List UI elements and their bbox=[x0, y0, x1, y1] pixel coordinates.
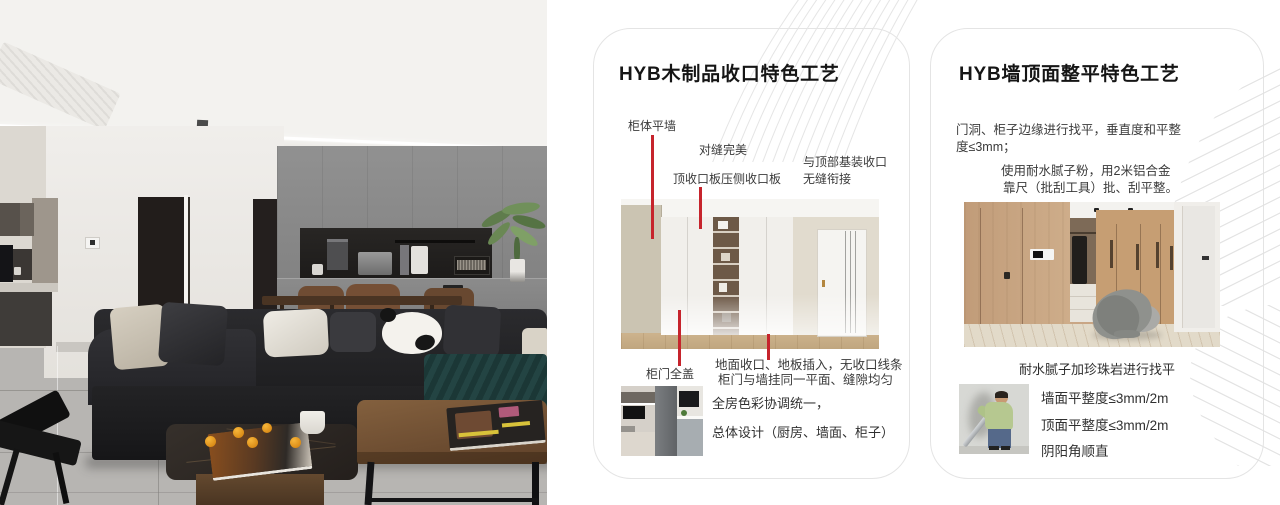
panda-ear bbox=[380, 308, 396, 322]
hanging-jacket bbox=[1072, 236, 1087, 284]
linear-air-vent bbox=[0, 42, 121, 131]
dark-doorway-1 bbox=[138, 197, 190, 315]
door-trim bbox=[184, 195, 188, 317]
orange-fruit bbox=[205, 436, 216, 447]
dining-table bbox=[262, 296, 462, 305]
black-sling-chair bbox=[0, 404, 88, 505]
leader-line bbox=[699, 187, 702, 229]
groove-handle bbox=[1170, 246, 1173, 270]
callout-top-board: 顶收口板压侧收口板 bbox=[673, 170, 781, 187]
thumb-tv bbox=[623, 406, 645, 419]
door-handle-small bbox=[1202, 256, 1209, 260]
worker-shoe bbox=[989, 446, 999, 450]
door-lock bbox=[1004, 272, 1010, 279]
hall-doorway bbox=[1174, 202, 1220, 332]
callout-perfect-seam: 对缝完美 bbox=[699, 141, 747, 158]
coffee-machine-left bbox=[0, 245, 13, 282]
card-wood-finishing: HYB木制品收口特色工艺 柜体平墙 对缝完美 顶收口板压侧收口板 与顶部基装收口… bbox=[593, 28, 910, 479]
shelf-object bbox=[721, 253, 730, 261]
summary-line-2: 总体设计（厨房、墙面、柜子） bbox=[712, 422, 894, 441]
thumb-appliance bbox=[679, 391, 699, 407]
spec-wall-flatness: 墙面平整度≤3mm/2m bbox=[1041, 387, 1168, 407]
doorway-inner-wall bbox=[1182, 206, 1215, 328]
mug bbox=[14, 267, 21, 275]
para2-line2: 靠尺（批刮工具）批、刮平整。 bbox=[1003, 177, 1178, 196]
image-caption: 耐水腻子加珍珠岩进行找平 bbox=[931, 359, 1263, 378]
coffee-bar-niche bbox=[300, 228, 492, 278]
kitchen-base-cabinet bbox=[0, 292, 52, 346]
worker-hair bbox=[995, 391, 1008, 398]
leader-line bbox=[651, 135, 654, 239]
kitchen-upper-cabinet-door bbox=[20, 203, 34, 236]
card2-title: HYB墙顶面整平特色工艺 bbox=[959, 59, 1180, 86]
card-wall-leveling: HYB墙顶面整平特色工艺 门洞、柜子边缘进行找平，垂直度和平整 度≤3mm； 使… bbox=[930, 28, 1264, 479]
pillow-white bbox=[263, 308, 329, 357]
callout-full-cover-door: 柜门全盖 bbox=[646, 365, 694, 382]
render-side-wall bbox=[621, 205, 662, 337]
kitchen-thumb-photo bbox=[621, 386, 703, 456]
mug bbox=[312, 264, 323, 275]
callout-top-join-2: 无缝衔接 bbox=[803, 170, 851, 187]
vase bbox=[510, 259, 525, 282]
door-handle bbox=[822, 280, 825, 287]
poster: HYB木制品收口特色工艺 柜体平墙 对缝完美 顶收口板压侧收口板 与顶部基装收口… bbox=[0, 0, 1280, 505]
orange-fruit bbox=[233, 427, 244, 438]
shelf-object bbox=[719, 283, 727, 292]
closet-rod bbox=[1070, 232, 1096, 234]
callout-cabinet-flush-wall: 柜体平墙 bbox=[628, 117, 676, 134]
thumb-gray-column bbox=[655, 386, 677, 456]
hallway-photo bbox=[964, 202, 1220, 347]
para1-line2: 度≤3mm； bbox=[956, 136, 1016, 155]
worker-shoe bbox=[1001, 446, 1010, 450]
spec-corners-straight: 阴阳角顺直 bbox=[1041, 440, 1109, 460]
magazine-cover-accent bbox=[498, 406, 519, 418]
thermostat bbox=[1030, 249, 1054, 260]
summary-line-1: 全房色彩协调统一， bbox=[712, 393, 829, 412]
blanket-tail bbox=[1114, 330, 1140, 338]
render-reflection-right bbox=[793, 294, 879, 335]
shelf-object bbox=[718, 221, 728, 229]
panda-pillow bbox=[382, 312, 442, 354]
living-room-photo bbox=[0, 0, 547, 505]
magazine bbox=[446, 400, 545, 451]
cup-rack bbox=[358, 252, 392, 275]
floor-note-2: 柜门与墙挂同一平面、缝隙均匀 bbox=[718, 369, 893, 388]
pillow-dark bbox=[158, 302, 228, 366]
pillow-dark bbox=[443, 305, 502, 358]
pillow-gray bbox=[330, 312, 376, 352]
hidden-door-seam bbox=[1022, 208, 1023, 342]
wall-rail bbox=[395, 240, 475, 243]
tile-joint bbox=[0, 390, 95, 391]
leader-line bbox=[767, 334, 770, 360]
leader-line bbox=[678, 310, 681, 366]
magazine-title-bar bbox=[502, 421, 530, 427]
thermostat-screen bbox=[1033, 251, 1043, 258]
table-edge-shadow bbox=[357, 452, 547, 464]
orange-fruit bbox=[262, 423, 272, 433]
kitchen-upper-cabinet bbox=[0, 203, 34, 236]
card1-title: HYB木制品收口特色工艺 bbox=[619, 59, 840, 86]
hidden-door-seam bbox=[980, 208, 981, 342]
spec-ceiling-flatness: 顶面平整度≤3mm/2m bbox=[1041, 414, 1168, 434]
kitchen-counter bbox=[0, 283, 58, 292]
groove-handle bbox=[1110, 240, 1113, 268]
orange-fruit bbox=[247, 437, 258, 448]
panel-seam bbox=[1160, 224, 1161, 324]
potted-plant bbox=[478, 203, 547, 285]
chair-leg bbox=[0, 448, 20, 505]
thumb-base-cabinet bbox=[677, 419, 703, 456]
worker-thumb-photo bbox=[959, 384, 1029, 454]
coffee-grinder bbox=[400, 245, 409, 275]
table-leg-crossbar bbox=[368, 498, 538, 502]
espresso-machine bbox=[411, 246, 428, 274]
coffee-machine bbox=[327, 239, 348, 270]
leaf bbox=[501, 200, 540, 216]
kitchen-tall-panel bbox=[32, 198, 58, 288]
hall-closet bbox=[1070, 218, 1096, 322]
worker-torso bbox=[985, 402, 1013, 430]
wardrobe-render-image bbox=[621, 199, 879, 349]
light-switch bbox=[85, 237, 100, 249]
groove-handle bbox=[1136, 244, 1139, 270]
coffee-cup bbox=[300, 411, 325, 434]
callout-top-join-1: 与顶部基装收口 bbox=[803, 153, 887, 170]
switch-button bbox=[90, 240, 95, 245]
orange-fruit bbox=[290, 437, 301, 448]
groove-handle bbox=[1156, 242, 1159, 268]
